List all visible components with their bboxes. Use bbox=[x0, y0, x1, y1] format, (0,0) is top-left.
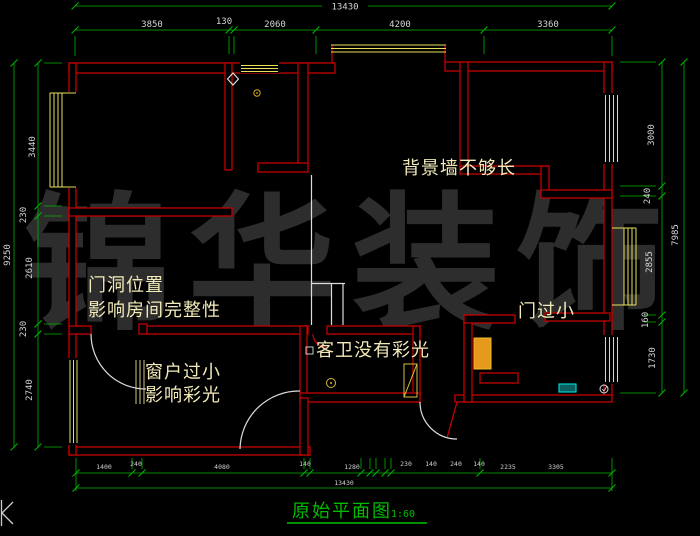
annotation-bg-wall: 背景墙不够长 bbox=[402, 158, 516, 179]
dim-left-seg: 3440 bbox=[28, 136, 38, 158]
wall-bedroom1-right bbox=[225, 63, 232, 170]
watermark-text: 锦华装饰 bbox=[24, 177, 680, 351]
dim-bottom-seg: 140 bbox=[473, 460, 485, 468]
wall-bedroom2-left bbox=[460, 62, 468, 170]
dim-bottom-seg: 4080 bbox=[214, 463, 230, 471]
wall-bath-bottom bbox=[300, 393, 420, 402]
door-leaf-filled-icon bbox=[474, 338, 491, 369]
title-block: 原始平面图 1:60 bbox=[287, 501, 427, 523]
wall-bottom-right bbox=[455, 395, 612, 402]
opening bbox=[68, 358, 77, 445]
corner-mark-icon bbox=[2, 500, 14, 526]
dim-left-seg: 2740 bbox=[25, 379, 35, 401]
annotation-door-position-2: 影响房间完整性 bbox=[88, 300, 221, 321]
dim-top-seg: 3850 bbox=[141, 20, 163, 30]
dim-bottom-seg: 230 bbox=[400, 460, 412, 468]
dim-left-total: 9250 bbox=[3, 244, 13, 266]
dim-bottom-seg: 240 bbox=[450, 460, 462, 468]
dim-right-total: 7985 bbox=[671, 224, 681, 246]
dim-bottom-seg: 1280 bbox=[344, 463, 360, 471]
annotation-small-door: 门过小 bbox=[518, 301, 575, 322]
wall-bottom-step-v bbox=[300, 398, 308, 455]
door-arc-bedroom-bottom bbox=[240, 391, 300, 449]
dim-bottom-seg: 3305 bbox=[548, 463, 564, 471]
cad-canvas: 锦华装饰 bbox=[0, 0, 700, 536]
dim-bottom-total: 13430 bbox=[334, 479, 354, 487]
annotation-door-position-1: 门洞位置 bbox=[88, 275, 164, 296]
dim-bottom-seg: 2235 bbox=[500, 463, 516, 471]
wall-room-small-top-a bbox=[464, 315, 515, 323]
opening bbox=[603, 93, 613, 164]
dim-right-seg: 2855 bbox=[645, 251, 655, 273]
watermark: 锦华装饰 bbox=[24, 177, 680, 351]
wall-bath-left bbox=[300, 326, 307, 402]
opening bbox=[68, 92, 77, 188]
wall-left-stub bbox=[69, 326, 91, 334]
dim-bottom-seg: 240 bbox=[130, 460, 142, 468]
step-outline bbox=[480, 373, 518, 383]
wall-room-small-left bbox=[464, 315, 472, 402]
annotation-small-window-2: 影响彩光 bbox=[145, 385, 221, 406]
wall-top-right bbox=[445, 62, 612, 71]
wall-bedroom2-bottom-b bbox=[541, 190, 612, 198]
dim-right-seg: 240 bbox=[643, 188, 653, 204]
annotation-small-window-1: 窗户过小 bbox=[145, 362, 221, 383]
dim-bottom-seg: 140 bbox=[425, 460, 437, 468]
dim-top-seg: 130 bbox=[216, 17, 232, 27]
dim-left-seg: 230 bbox=[19, 207, 29, 223]
dim-left-seg: 2610 bbox=[25, 257, 35, 279]
drawing-scale: 1:60 bbox=[391, 509, 415, 520]
opening bbox=[603, 335, 613, 384]
wardrobe-lines bbox=[136, 360, 144, 404]
ceiling-lamp-icon-dot bbox=[256, 92, 258, 94]
wall-center-top bbox=[298, 63, 308, 167]
dim-right-seg: 160 bbox=[641, 312, 651, 328]
wall-bottom-left bbox=[69, 447, 310, 455]
floor-drain-icon-dot bbox=[330, 382, 332, 384]
dim-left-seg: 230 bbox=[19, 321, 29, 337]
dim-top-seg: 4200 bbox=[389, 20, 411, 30]
wall-hall-h bbox=[258, 163, 308, 172]
annotation-guest-bath: 客卫没有彩光 bbox=[316, 340, 430, 361]
dim-right-seg: 1730 bbox=[648, 347, 658, 369]
wall-bedroom1-bottom bbox=[69, 208, 232, 216]
wall-door-block bbox=[139, 324, 147, 334]
wall-top-left bbox=[69, 63, 335, 73]
dim-bottom-seg: 1400 bbox=[96, 463, 112, 471]
window-top-bay bbox=[331, 45, 446, 52]
wall-bath-top bbox=[327, 326, 420, 334]
dim-top-seg: 3360 bbox=[537, 20, 559, 30]
sink-icon bbox=[559, 384, 576, 392]
dim-right-seg: 3000 bbox=[647, 124, 657, 146]
wall-mid-left-h bbox=[146, 326, 308, 334]
dim-top-seg: 2060 bbox=[264, 20, 286, 30]
floor-plan-drawing: 锦华装饰 bbox=[0, 0, 700, 536]
drawing-title: 原始平面图 bbox=[292, 501, 392, 522]
dim-bottom-seg: 140 bbox=[299, 460, 311, 468]
dim-top-total: 13430 bbox=[331, 3, 358, 13]
